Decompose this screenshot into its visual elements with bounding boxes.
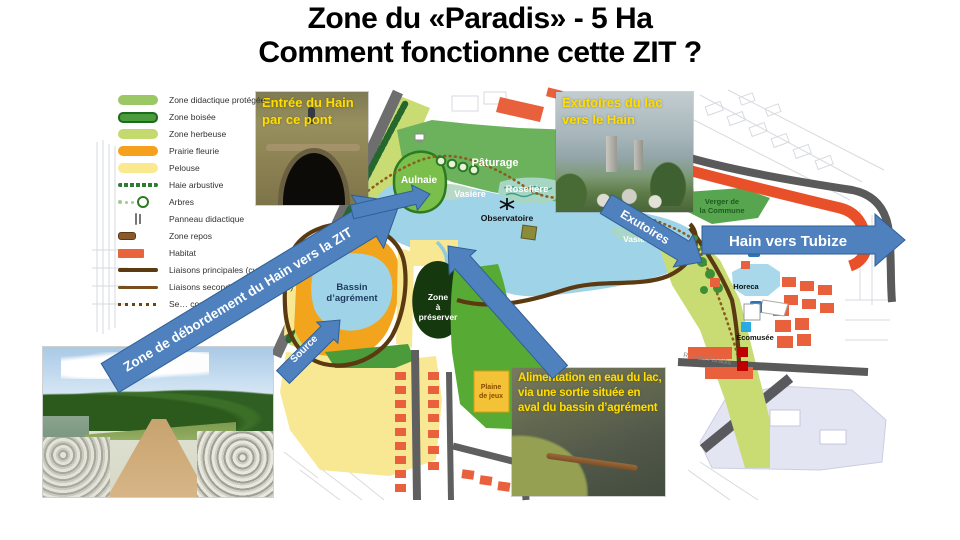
label-roseliere: Roselière bbox=[506, 184, 549, 195]
legend-item: Zone repos bbox=[118, 231, 310, 242]
label-plaine-1: Plaine bbox=[481, 384, 502, 391]
legend-item: Pelouse bbox=[118, 163, 310, 174]
legend-item: Zone herbeuse bbox=[118, 129, 310, 140]
label-aulnaie: Aulnaie bbox=[401, 175, 438, 186]
swatch-zone-didactique bbox=[118, 95, 158, 105]
parking-letter-2: P bbox=[753, 303, 759, 313]
label-vasiere-est: Vasière bbox=[623, 234, 653, 244]
swatch-zone-repos bbox=[118, 232, 136, 240]
legend-item: Liaisons secondaires (piétonnes) bbox=[118, 282, 310, 293]
street-vertical-1 bbox=[415, 350, 417, 500]
legend-item: Haie arbustive bbox=[118, 180, 310, 191]
photo-gravel-path bbox=[43, 347, 273, 497]
label-paturage: Pâturage bbox=[471, 157, 518, 169]
legend-item: Prairie fleurie bbox=[118, 146, 310, 157]
plaine-de-jeux-box bbox=[474, 371, 509, 412]
map-legend: Zone didactique protégée Zone boisée Zon… bbox=[118, 95, 310, 310]
swatch-liaisons-principales bbox=[118, 268, 158, 272]
observatory-deck bbox=[521, 225, 537, 240]
outlet-pillar bbox=[634, 140, 643, 170]
swatch-habitat bbox=[118, 249, 144, 258]
legend-item: Zone didactique protégée bbox=[118, 95, 310, 106]
label-observatoire: Observatoire bbox=[481, 213, 534, 223]
clouds bbox=[61, 352, 208, 379]
legend-label: Pelouse bbox=[169, 163, 200, 173]
legend-item: Se… couverte bbox=[118, 299, 310, 310]
outlet-pillar bbox=[606, 136, 617, 172]
photo-caption: Alimentation en eau du lac, via une sort… bbox=[518, 371, 665, 416]
label-vasiere-nord: Vasière bbox=[454, 189, 486, 199]
legend-label: Habitat bbox=[169, 248, 196, 258]
parking-letter-1: P bbox=[751, 247, 757, 257]
trees-icon bbox=[118, 197, 158, 207]
swatch-pelouse bbox=[118, 163, 158, 173]
legend-label: Panneau didactique bbox=[169, 214, 244, 224]
legend-item: Panneau didactique bbox=[118, 214, 310, 225]
label-verger-2: la Commune bbox=[699, 206, 744, 215]
legend-item: Arbres bbox=[118, 197, 310, 208]
swatch-prairie-fleurie bbox=[118, 146, 158, 156]
legend-label: Liaisons secondaires (piétonnes) bbox=[169, 282, 293, 292]
label-zone-3: préserver bbox=[419, 312, 458, 322]
legend-item: Habitat bbox=[118, 248, 310, 259]
slide: Zone du «Paradis» - 5 Ha Comment fonctio… bbox=[0, 0, 960, 540]
sign-icon bbox=[118, 214, 158, 224]
legend-label: Zone boisée bbox=[169, 112, 216, 122]
riprap-left bbox=[43, 437, 110, 497]
legend-label: Prairie fleurie bbox=[169, 146, 219, 156]
label-ecomusee: Écomusée bbox=[736, 333, 774, 342]
photo-lake-outlets: Exutoires du lac vers le Hain bbox=[556, 92, 693, 212]
parking-lot-2 bbox=[759, 300, 788, 316]
swatch-liaisons-secondaires bbox=[118, 286, 158, 289]
legend-item: Zone boisée bbox=[118, 112, 310, 123]
legend-label: Zone repos bbox=[169, 231, 212, 241]
swatch-haie-arbustive bbox=[118, 183, 158, 187]
legend-label: Zone herbeuse bbox=[169, 129, 226, 139]
legend-label: Haie arbustive bbox=[169, 180, 223, 190]
panneau-icon bbox=[415, 134, 424, 140]
legend-label: Liaisons principales (cyclo-piétonnes) bbox=[169, 265, 310, 275]
rocks bbox=[582, 186, 668, 212]
horeca-pond bbox=[732, 264, 780, 296]
label-zone-1: Zone bbox=[428, 292, 449, 302]
legend-item: Liaisons principales (cyclo-piétonnes) bbox=[118, 265, 310, 276]
swatch-zone-herbeuse bbox=[118, 129, 158, 139]
photo-lake-feed: Alimentation en eau du lac, via une sort… bbox=[512, 368, 665, 496]
parking-lot-1 bbox=[750, 228, 780, 244]
label-bassin-1: Bassin bbox=[336, 282, 367, 293]
legend-label: Zone didactique protégée bbox=[169, 95, 265, 105]
legend-label: Arbres bbox=[169, 197, 194, 207]
label-horeca: Horeca bbox=[733, 282, 759, 291]
ecomusee-marker bbox=[741, 322, 751, 332]
swatch-zone-boisee bbox=[118, 112, 158, 123]
cadastral-blocks bbox=[688, 378, 886, 500]
label-verger-1: Verger de bbox=[705, 197, 739, 206]
swatch-couverte bbox=[118, 303, 158, 306]
legend-label: Se… couverte bbox=[169, 299, 223, 309]
riprap-right bbox=[197, 431, 273, 497]
street-vertical-2 bbox=[449, 372, 451, 500]
label-plaine-2: de jeux bbox=[479, 393, 503, 400]
label-zone-2: à bbox=[436, 302, 441, 312]
label-bassin-2: d’agrément bbox=[326, 293, 378, 304]
photo-caption: Exutoires du lac vers le Hain bbox=[562, 95, 674, 128]
